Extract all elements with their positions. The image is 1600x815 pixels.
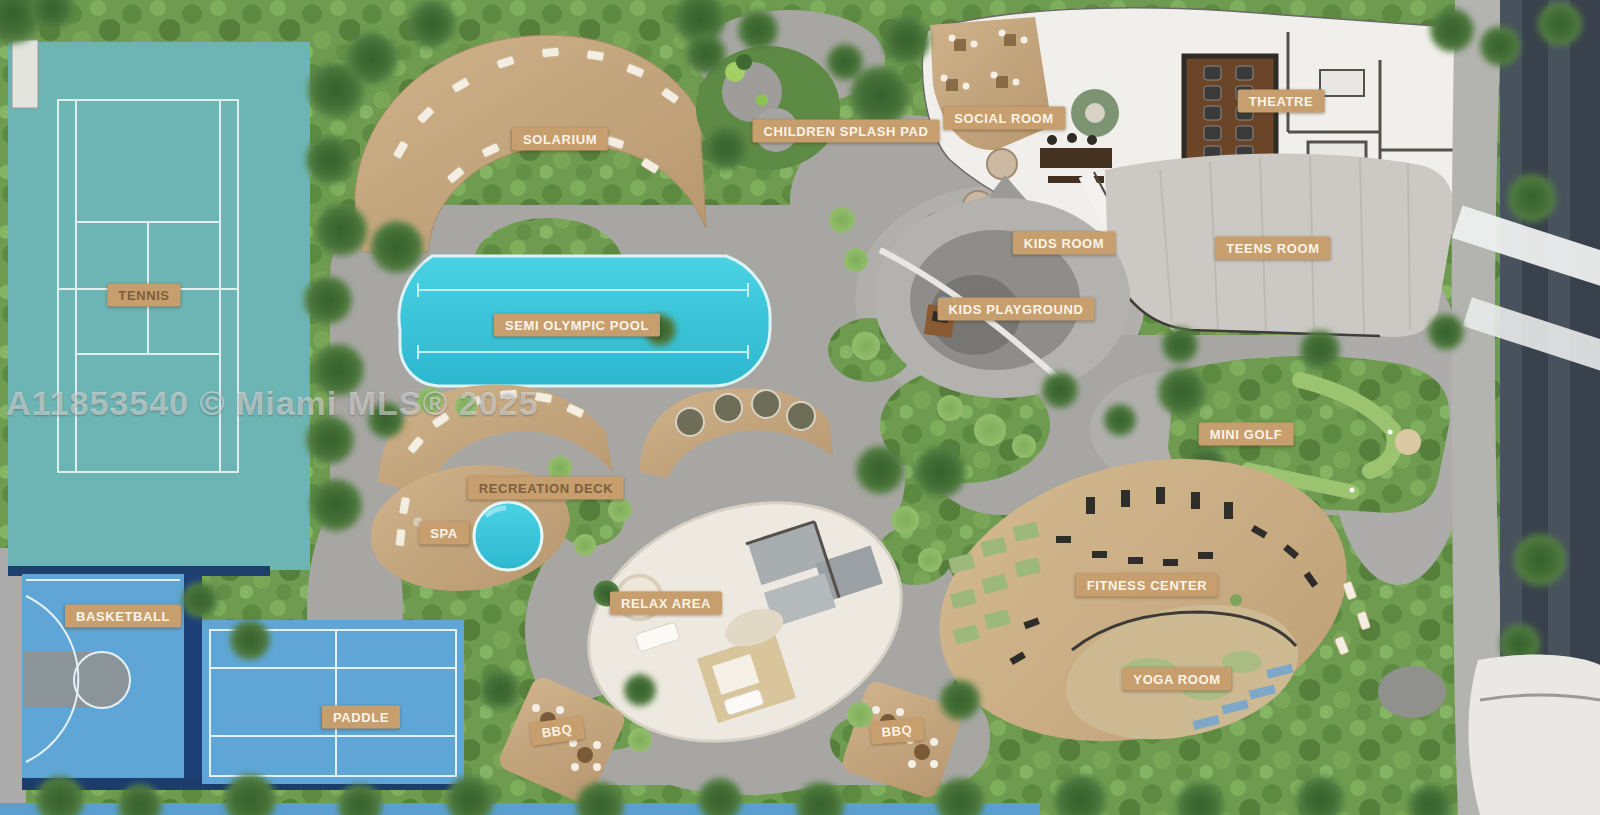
label-teens-room: TEENS ROOM — [1215, 237, 1330, 260]
label-spa: SPA — [419, 522, 469, 545]
label-fitness-center: FITNESS CENTER — [1076, 574, 1218, 597]
label-solarium: SOLARIUM — [512, 128, 608, 151]
label-bbq-east: BBQ — [870, 717, 925, 745]
label-mini-golf: MINI GOLF — [1199, 423, 1294, 446]
label-tennis: TENNIS — [107, 284, 180, 307]
label-children-splash-pad: CHILDREN SPLASH PAD — [752, 120, 939, 143]
label-recreation-deck: RECREATION DECK — [468, 477, 624, 500]
label-theatre: THEATRE — [1238, 90, 1325, 113]
spa-pool — [474, 502, 542, 570]
label-yoga-room: YOGA ROOM — [1122, 668, 1231, 691]
label-paddle: PADDLE — [322, 706, 400, 729]
label-kids-playground: KIDS PLAYGROUND — [938, 298, 1095, 321]
label-semi-olympic-pool: SEMI OLYMPIC POOL — [494, 314, 660, 337]
tennis-court — [8, 40, 310, 576]
mls-watermark: A11853540 © Miami MLS® 2025 — [6, 384, 539, 423]
label-kids-room: KIDS ROOM — [1013, 232, 1116, 255]
amenity-site-plan: A11853540 © Miami MLS® 2025 TENNIS SOLAR… — [0, 0, 1600, 815]
label-relax-area: RELAX AREA — [610, 592, 722, 615]
corner-building — [1468, 655, 1600, 815]
label-basketball: BASKETBALL — [65, 605, 181, 628]
label-social-room: SOCIAL ROOM — [943, 107, 1065, 130]
